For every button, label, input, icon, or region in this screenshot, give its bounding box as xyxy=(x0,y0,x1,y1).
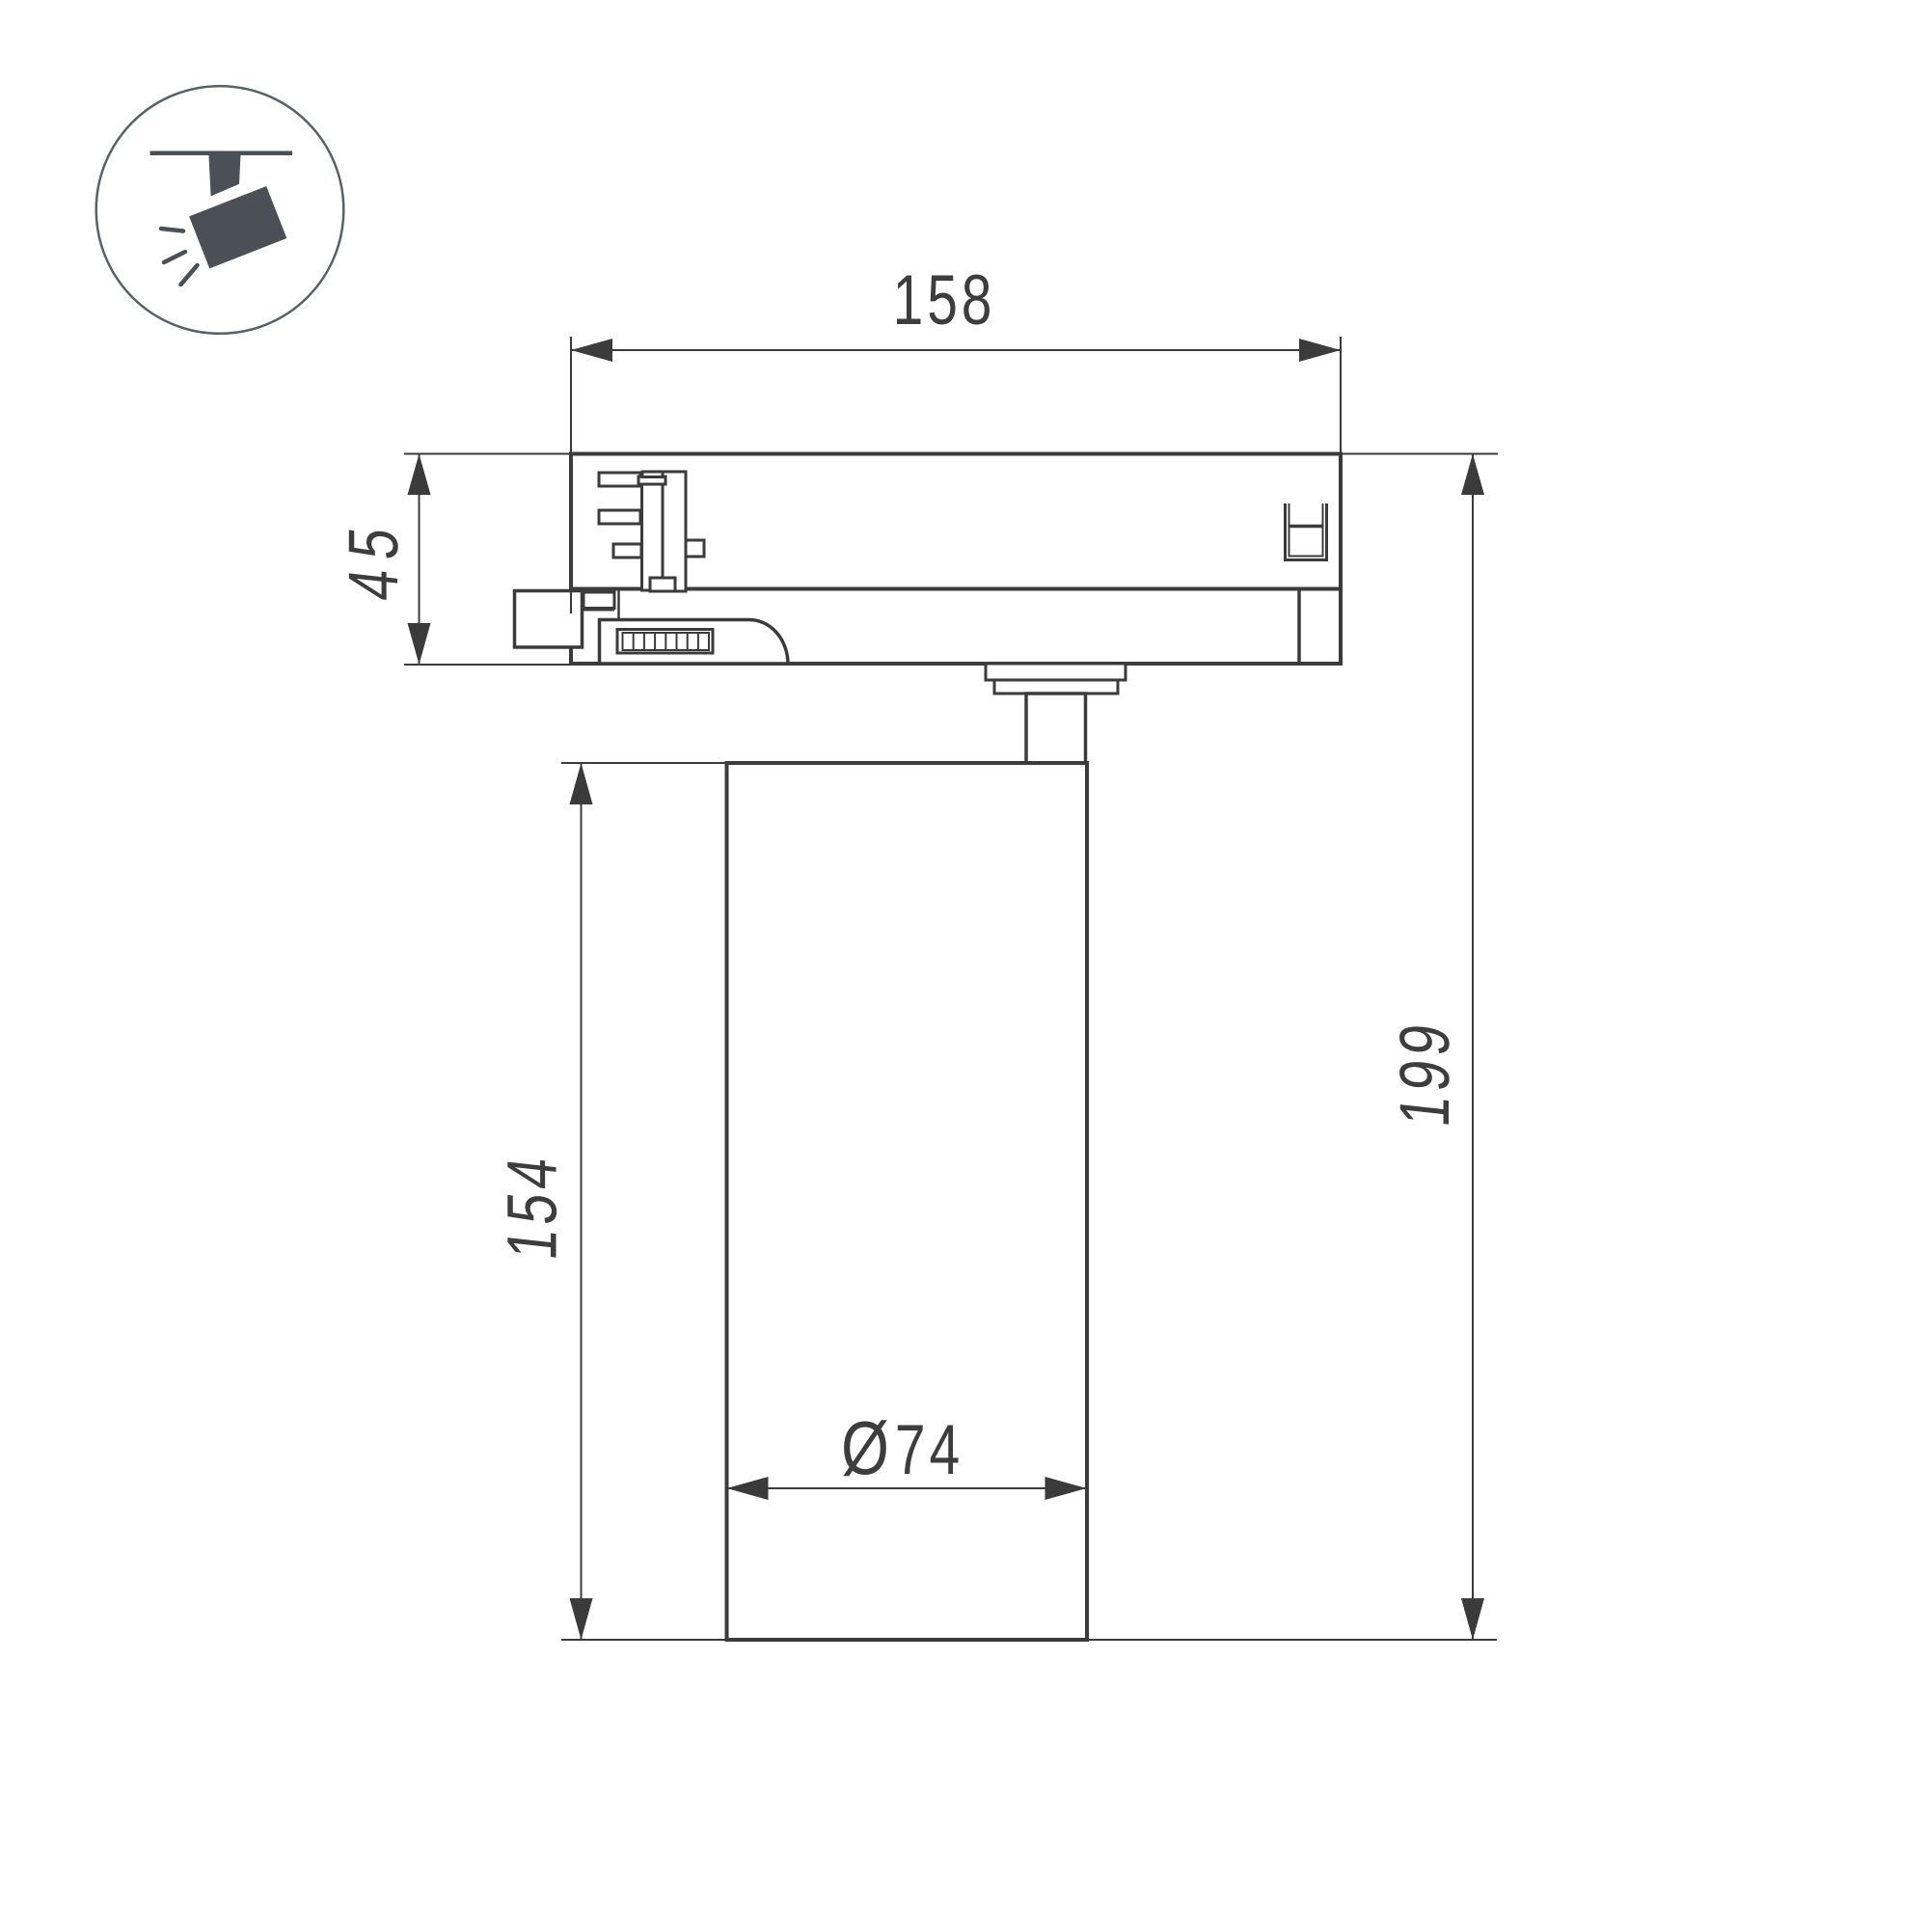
svg-text:154: 154 xyxy=(493,1149,571,1264)
svg-text:74: 74 xyxy=(895,1410,963,1488)
svg-text:199: 199 xyxy=(1385,1016,1463,1130)
svg-text:45: 45 xyxy=(334,513,412,604)
svg-text:158: 158 xyxy=(893,260,996,339)
svg-text:Ø: Ø xyxy=(841,1406,889,1490)
